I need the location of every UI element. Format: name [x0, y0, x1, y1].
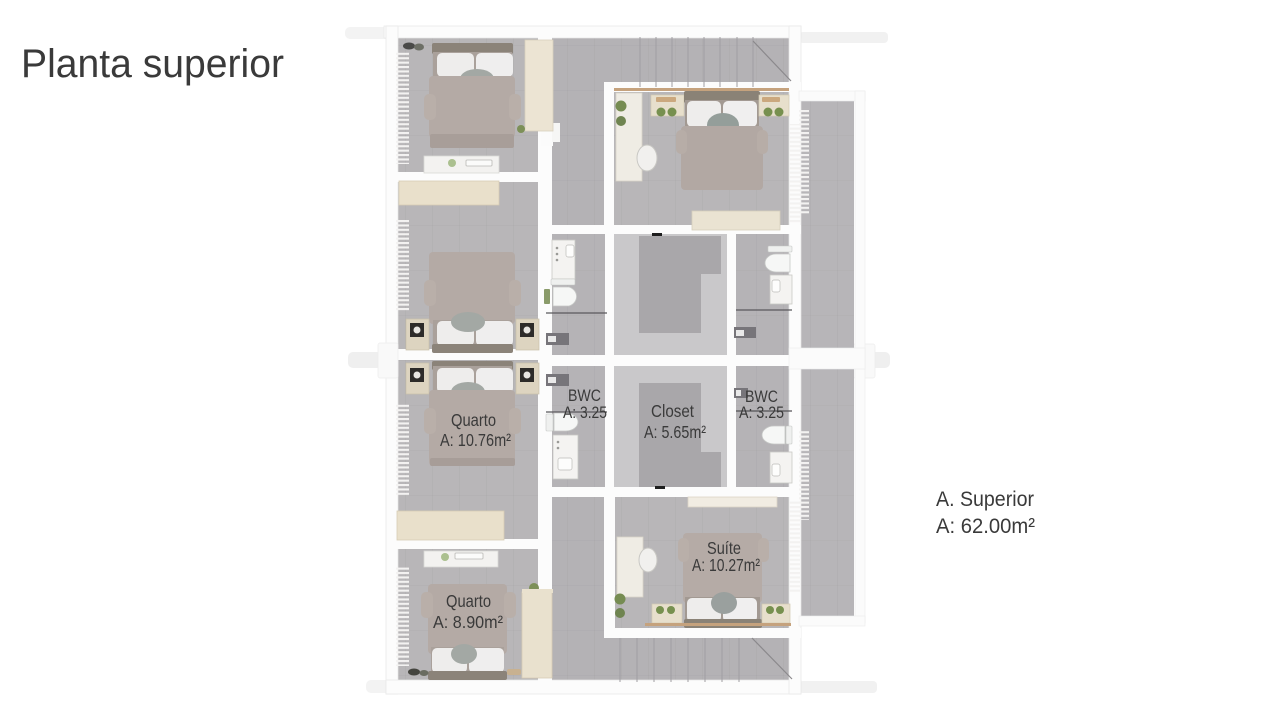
svg-text:A. Superior: A. Superior — [936, 488, 1034, 511]
svg-text:A: 10.27m²: A: 10.27m² — [692, 555, 760, 575]
svg-text:A: 5.65m²: A: 5.65m² — [644, 422, 706, 442]
svg-text:Quarto: Quarto — [446, 591, 491, 611]
svg-text:A: 8.90m²: A: 8.90m² — [433, 612, 503, 632]
svg-text:A: 3.25: A: 3.25 — [563, 403, 607, 422]
svg-text:A: 62.00m²: A: 62.00m² — [936, 515, 1035, 538]
svg-text:A: 3.25: A: 3.25 — [739, 403, 784, 422]
svg-text:Planta superior: Planta superior — [21, 42, 284, 86]
svg-text:Quarto: Quarto — [451, 410, 496, 430]
svg-text:A: 10.76m²: A: 10.76m² — [440, 430, 511, 450]
svg-text:Closet: Closet — [651, 401, 694, 421]
